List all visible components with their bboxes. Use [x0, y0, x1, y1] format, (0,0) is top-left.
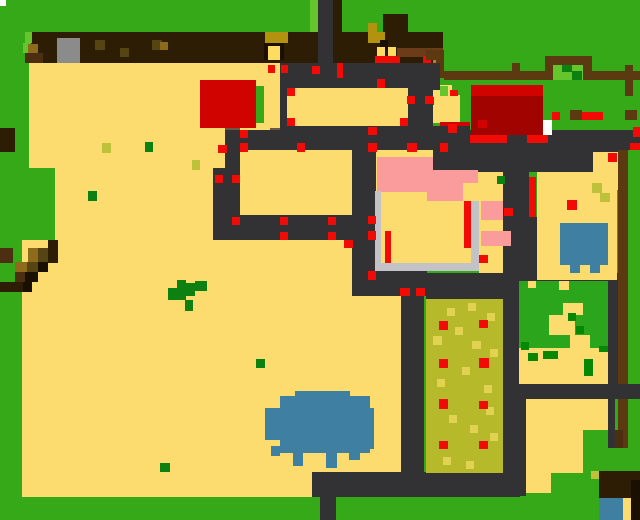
torch-9 — [407, 96, 415, 104]
cliff-l4 — [48, 240, 58, 263]
field-speck-12 — [470, 425, 478, 433]
torch-7 — [287, 118, 295, 126]
field-speck-3 — [468, 303, 476, 311]
gold-block-2 — [368, 23, 377, 32]
torch-k — [479, 255, 488, 263]
wall-light-h — [375, 263, 479, 271]
road-south — [320, 497, 336, 520]
torch-24 — [328, 217, 336, 225]
pen-bush-dark-1 — [562, 65, 572, 72]
cliff-l9 — [25, 272, 38, 282]
cliff-l10 — [0, 282, 23, 292]
band-detail-1 — [95, 40, 105, 50]
garden-patch-3 — [570, 335, 590, 348]
shrub-1 — [102, 143, 111, 153]
berry-2 — [479, 320, 488, 328]
torch-1 — [268, 65, 275, 73]
red-strip-3 — [582, 112, 603, 120]
floor-room-2 — [427, 201, 464, 263]
field-speck-7 — [490, 349, 498, 357]
berry-3 — [439, 359, 448, 368]
torch-20 — [215, 175, 223, 183]
torch-4 — [337, 63, 343, 78]
grass-light-column — [310, 0, 318, 33]
house-white-block — [543, 120, 552, 135]
pink-floor-ext — [426, 183, 463, 201]
path-vertical-right-2 — [529, 217, 537, 275]
border-brown-east — [618, 150, 628, 448]
path-vertical-right — [503, 168, 529, 275]
corridor-east — [519, 384, 640, 399]
field-speck-8 — [437, 379, 445, 387]
fence-nub — [512, 63, 520, 72]
field-speck-15 — [466, 461, 474, 469]
wall-south-2 — [433, 150, 470, 170]
torch-2 — [281, 65, 288, 73]
torch-5 — [377, 79, 385, 88]
stair-3 — [452, 95, 460, 122]
blue-table — [560, 223, 608, 265]
torch-15 — [297, 143, 305, 152]
torch-f — [633, 127, 640, 137]
wall-light-v2 — [471, 201, 479, 271]
cliff-edge-1 — [25, 32, 32, 43]
cliff-l7 — [38, 262, 48, 272]
field-speck-11 — [449, 415, 457, 423]
garden-notch-2 — [559, 281, 569, 290]
garden-notch-1 — [528, 281, 536, 288]
scrub-3 — [186, 283, 195, 296]
sand-se-strip — [623, 498, 631, 520]
torch-e — [552, 112, 560, 120]
torch-29 — [368, 231, 376, 240]
garden-dot-2 — [576, 326, 584, 334]
blue-table-leg-1 — [570, 265, 580, 273]
pink-block-1 — [481, 201, 503, 220]
brown-block-1 — [570, 110, 582, 120]
floor-under-door — [464, 248, 471, 263]
torch-23 — [280, 217, 288, 225]
torch-19 — [440, 143, 448, 152]
torch-30 — [368, 271, 376, 280]
berry-8 — [479, 441, 488, 449]
torch-b — [450, 90, 458, 96]
torch-13 — [240, 130, 248, 138]
torch-25 — [280, 232, 288, 240]
grass-strip-barn — [256, 86, 264, 123]
bush-2 — [88, 191, 97, 201]
grass-east-strip — [628, 150, 640, 448]
pen-right — [583, 65, 592, 80]
path-band-south — [312, 472, 520, 497]
world-map[interactable] — [0, 0, 640, 520]
floor-east-patch — [463, 183, 503, 201]
torch-32 — [416, 288, 425, 296]
wall-column-top — [318, 0, 333, 66]
bush-5 — [497, 176, 505, 184]
water-se — [599, 498, 623, 520]
brown-block-2 — [625, 110, 637, 120]
room-left-floor — [240, 150, 353, 215]
torch-12 — [218, 145, 227, 153]
cliff-l8 — [15, 272, 25, 282]
cliff-l11 — [23, 282, 32, 292]
tree-strip — [333, 0, 342, 33]
sprout-1 — [528, 353, 538, 361]
path-vertical — [401, 288, 424, 473]
pond-top — [295, 391, 350, 401]
cliff-l2 — [28, 248, 38, 262]
torch-26 — [328, 232, 336, 240]
torch-22 — [232, 217, 240, 225]
pink-floor-top — [377, 157, 433, 170]
bush-3 — [160, 463, 170, 472]
cliff-l1 — [0, 248, 13, 263]
torch-33 — [504, 208, 513, 216]
wall-north — [280, 63, 440, 90]
field-speck-13 — [490, 433, 498, 441]
scrub-4 — [195, 281, 207, 291]
sprout-2 — [543, 351, 558, 359]
field-speck-5 — [455, 327, 463, 335]
pond-east — [366, 408, 374, 449]
torch-6 — [287, 88, 295, 96]
rock-west-edge — [0, 128, 15, 152]
torch-28 — [368, 216, 376, 224]
fence-5 — [625, 65, 633, 96]
bush-1 — [145, 142, 153, 152]
door-red-1 — [464, 201, 471, 248]
cliff-rock-2 — [25, 53, 43, 63]
pen-top — [545, 56, 592, 65]
sprout-3 — [599, 346, 608, 352]
wall-se — [608, 399, 615, 448]
sprout-5 — [521, 342, 529, 350]
pink-block-2 — [481, 231, 511, 246]
house-red-top — [471, 85, 543, 96]
pond-foot-1 — [293, 451, 303, 466]
cliff-l5 — [15, 262, 27, 272]
band-detail-4 — [160, 42, 168, 50]
field-speck-1 — [433, 336, 442, 345]
torch-27 — [344, 240, 353, 248]
berry-5 — [439, 399, 448, 409]
pen-bush-dark-2 — [572, 71, 582, 80]
sprout-4 — [584, 359, 593, 376]
door-red-3 — [529, 177, 536, 217]
garden-dot-1 — [568, 313, 576, 321]
band-detail-2 — [120, 48, 129, 57]
herb-4 — [591, 471, 599, 479]
cliff-l3 — [38, 248, 48, 262]
torch-31 — [400, 288, 410, 296]
blue-table-leg-2 — [590, 265, 600, 273]
torch-3 — [312, 66, 320, 74]
field-speck-4 — [487, 313, 495, 321]
red-strip-1 — [470, 135, 507, 143]
field-speck-2 — [447, 308, 455, 316]
fence-3 — [444, 71, 545, 80]
torch-18 — [407, 143, 417, 152]
pond-foot-3 — [349, 447, 360, 460]
cliff-l6 — [27, 262, 38, 272]
torch-j — [567, 200, 577, 210]
shrub-2 — [192, 160, 200, 170]
field-speck-10 — [484, 385, 492, 393]
wall-garden-east — [608, 281, 618, 399]
torch-17 — [368, 143, 377, 152]
berry-6 — [479, 401, 488, 409]
grass-se-2 — [551, 473, 589, 497]
torch-21 — [232, 175, 240, 183]
torch-8 — [400, 118, 408, 126]
torch-16 — [368, 127, 377, 135]
house-red-dot — [478, 120, 487, 128]
door-red-2 — [385, 231, 391, 263]
block-se-dark — [631, 480, 640, 520]
bush-4 — [256, 359, 265, 368]
scrub-5 — [185, 300, 193, 311]
field-speck-6 — [472, 341, 481, 349]
field-speck-14 — [443, 457, 451, 465]
lamp-1 — [268, 46, 280, 60]
scrub-2 — [168, 288, 186, 300]
wall-east-1 — [408, 88, 433, 126]
map-marker — [0, 0, 6, 6]
herb-3 — [600, 193, 610, 202]
grass-bulge-west — [0, 168, 55, 240]
pond-main — [280, 396, 370, 453]
pond-foot-2 — [326, 451, 337, 468]
house-red-body — [471, 96, 543, 135]
torch-i — [608, 153, 617, 162]
pond-west — [265, 408, 280, 440]
red-strip-2 — [527, 135, 548, 143]
herb-2 — [592, 183, 602, 193]
berry-4 — [479, 358, 489, 368]
torch-14 — [240, 143, 248, 152]
torch-11 — [448, 124, 457, 133]
field-speck-9 — [462, 367, 470, 375]
berry-1 — [439, 321, 448, 330]
room-mid-floor — [287, 88, 408, 126]
gold-chest — [265, 32, 288, 43]
torch-10 — [425, 96, 433, 104]
tree-canopy — [383, 14, 408, 32]
pen-left — [545, 65, 553, 80]
pond-dot — [271, 446, 280, 456]
stair-grass-dot — [440, 86, 448, 96]
barn-red — [200, 80, 256, 128]
berry-7 — [439, 441, 448, 449]
